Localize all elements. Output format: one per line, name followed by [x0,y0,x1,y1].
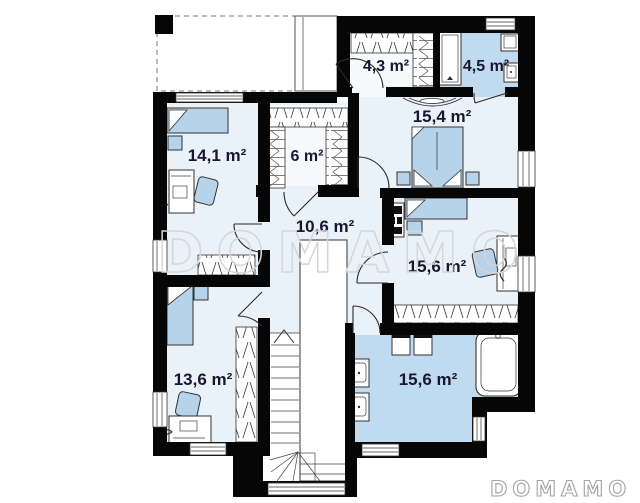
room-label-13-6: 13,6 m² [174,370,233,389]
sink-icon [501,34,519,51]
bathtub-icon [476,332,521,396]
bidet-icon [414,334,432,355]
window [268,483,345,495]
window [190,443,226,455]
room-label-14-1: 14,1 m² [188,146,247,165]
window [473,417,485,441]
room-label-15-6-bathroom: 15,6 m² [399,370,458,389]
toilet-icon [392,334,410,355]
chimney-outline [295,16,337,91]
room-label-4-5: 4,5 m² [463,58,509,75]
wardrobe-icon [388,305,518,323]
window [176,93,243,102]
floor-plan-canvas: 14,1 m² 6 m² 4,3 m² 4,5 m² 15,4 m² 10,6 … [0,0,640,503]
floor-plan-page: 14,1 m² 6 m² 4,3 m² 4,5 m² 15,4 m² 10,6 … [0,0,640,503]
wardrobe-icon [236,327,257,442]
chair-icon [175,391,202,419]
roof-corner-block [155,15,173,34]
desk-icon [169,416,211,443]
shower-icon [439,32,461,85]
window [153,392,167,427]
room-label-6: 6 m² [291,148,324,165]
roof-outline [155,15,337,91]
desk-icon [169,170,194,213]
watermark-small: DOMAMO [490,477,631,501]
window [518,151,535,187]
room-label-4-3: 4,3 m² [363,58,409,75]
watermark-large: DOMAMO [157,221,532,286]
window [486,18,515,30]
window [362,444,399,456]
room-label-15-4: 15,4 m² [413,107,472,126]
